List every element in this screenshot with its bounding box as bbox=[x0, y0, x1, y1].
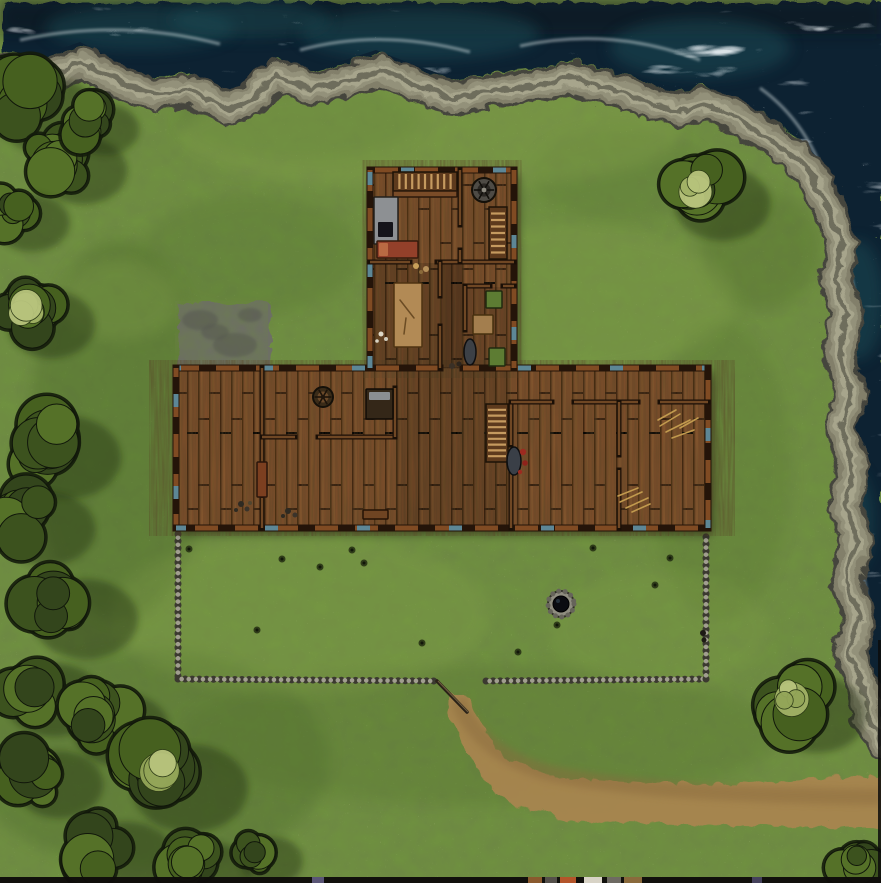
tree-foliage-light bbox=[776, 692, 794, 710]
bottom-strip-detail bbox=[312, 877, 324, 883]
rats-mid bbox=[281, 514, 285, 518]
door-west-room bbox=[257, 462, 267, 497]
tree-foliage bbox=[27, 148, 75, 196]
tree-foliage-light bbox=[687, 170, 710, 193]
bed-pillow bbox=[379, 243, 388, 256]
bones bbox=[375, 339, 379, 343]
loom-top bbox=[369, 392, 390, 400]
rats-mid bbox=[285, 508, 291, 514]
ground-spot-core bbox=[351, 549, 354, 552]
cat-on-fence bbox=[700, 630, 706, 636]
side-table bbox=[473, 315, 493, 334]
tree-foliage bbox=[74, 91, 104, 121]
chickens bbox=[419, 270, 423, 274]
bones bbox=[379, 332, 384, 337]
rats-mid bbox=[293, 513, 298, 518]
ground-spot-core bbox=[281, 558, 284, 561]
rats-west bbox=[234, 508, 238, 512]
fence-stones bbox=[486, 679, 706, 681]
blood-drops bbox=[520, 449, 526, 455]
ground-spot-core bbox=[556, 624, 559, 627]
statue bbox=[464, 339, 476, 365]
ground-spot-core bbox=[363, 562, 366, 565]
bottom-strip-detail bbox=[752, 877, 762, 883]
well-water-glint bbox=[556, 599, 560, 603]
grass-light-patch bbox=[550, 570, 770, 690]
armchair-north bbox=[486, 291, 502, 308]
hearth-opening bbox=[378, 222, 393, 237]
tree-foliage bbox=[36, 404, 76, 444]
bench bbox=[363, 510, 388, 519]
ground-spot-core bbox=[517, 651, 520, 654]
bottom-map-strip bbox=[0, 877, 881, 883]
blood-drops bbox=[518, 470, 522, 474]
well-hole bbox=[553, 596, 569, 612]
tree-foliage bbox=[71, 709, 105, 743]
tools-wall bbox=[449, 363, 455, 369]
ground-spot-core bbox=[421, 642, 424, 645]
tree-foliage bbox=[171, 846, 203, 878]
battlemap-canvas[interactable] bbox=[0, 0, 881, 883]
rats-west bbox=[248, 501, 252, 505]
tree-foliage bbox=[0, 514, 45, 561]
stair-rail-top bbox=[393, 191, 457, 197]
spinning-wheel-hub bbox=[321, 395, 325, 399]
tree-foliage bbox=[3, 54, 57, 108]
battlemap bbox=[0, 0, 881, 883]
long-table bbox=[394, 283, 422, 347]
tools-wall bbox=[457, 362, 462, 367]
tree-foliage bbox=[847, 846, 866, 865]
tree-foliage bbox=[244, 842, 265, 863]
tree-foliage bbox=[15, 668, 54, 707]
ground-spot-core bbox=[592, 547, 595, 550]
ground-spot-core bbox=[319, 566, 322, 569]
rats-west bbox=[245, 507, 250, 512]
bones bbox=[384, 337, 388, 341]
ground-spot-core bbox=[188, 548, 191, 551]
chickens bbox=[423, 266, 429, 272]
blood-drops bbox=[522, 460, 528, 466]
stone-mottle bbox=[201, 324, 229, 340]
stone-mottle bbox=[238, 308, 262, 322]
rats-west bbox=[238, 501, 244, 507]
bottom-strip-detail bbox=[528, 877, 542, 883]
bottom-strip-detail bbox=[584, 877, 602, 883]
armchair-south bbox=[489, 348, 505, 366]
ground-spot-core bbox=[654, 584, 657, 587]
room-shade bbox=[441, 263, 462, 368]
spiral-stair-hub bbox=[482, 188, 487, 193]
tree-foliage bbox=[22, 486, 55, 519]
grass-light-patch bbox=[110, 535, 490, 695]
cat-on-fence bbox=[702, 638, 707, 643]
tree-foliage bbox=[37, 577, 70, 610]
chickens bbox=[413, 263, 419, 269]
tree-foliage-light bbox=[149, 749, 176, 776]
bottom-strip-detail bbox=[607, 877, 621, 883]
tree-foliage bbox=[4, 191, 34, 221]
ground-spot-core bbox=[669, 557, 672, 560]
bottom-strip-detail bbox=[624, 877, 642, 883]
tree-foliage bbox=[0, 734, 49, 783]
bottom-strip-detail bbox=[560, 877, 576, 883]
bottom-strip-detail bbox=[545, 877, 557, 883]
ground-spot-core bbox=[256, 629, 259, 632]
tree-foliage-light bbox=[10, 289, 42, 321]
